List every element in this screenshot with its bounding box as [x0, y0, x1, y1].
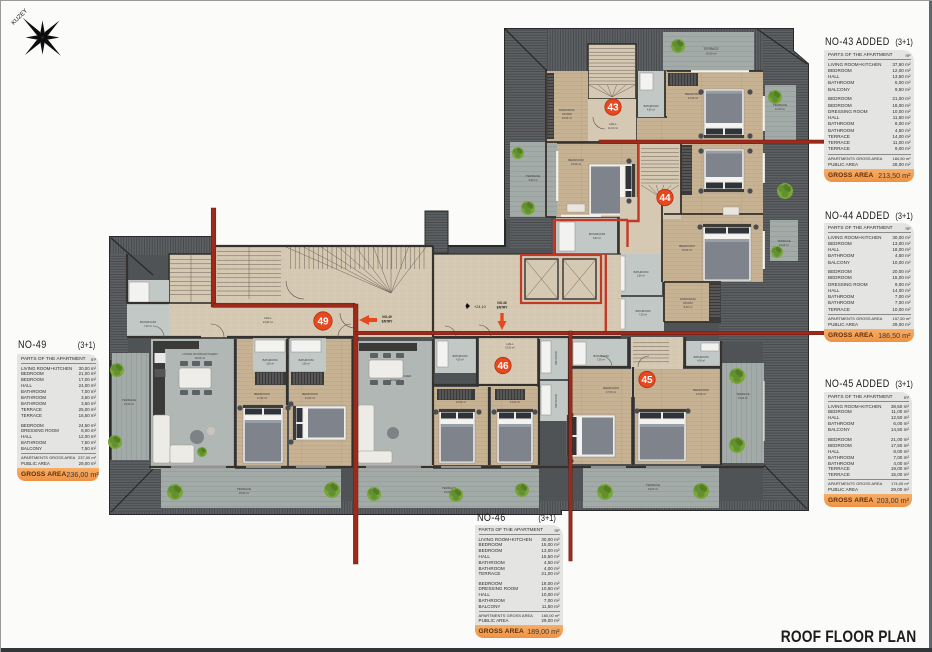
svg-text:17,50 m²: 17,50 m² [606, 390, 616, 394]
svg-text:13,00 m²: 13,00 m² [510, 400, 520, 404]
svg-text:11,00 m²: 11,00 m² [608, 126, 618, 130]
svg-text:BEDROOM: BEDROOM [693, 388, 709, 392]
svg-text:BEDROOM: BEDROOM [679, 244, 695, 248]
svg-text:BATHROOM: BATHROOM [263, 358, 278, 362]
svg-text:BATHROOM: BATHROOM [299, 358, 314, 362]
svg-text:15,00 m²: 15,00 m² [571, 162, 581, 166]
svg-text:21,00 m²: 21,00 m² [696, 392, 706, 396]
svg-text:7,00 m²: 7,00 m² [144, 325, 152, 328]
svg-text:3,50 m²: 3,50 m² [302, 363, 310, 366]
svg-text:49: 49 [317, 316, 329, 327]
svg-text:2,00 m²: 2,00 m² [637, 275, 645, 278]
svg-text:7,30 m²: 7,30 m² [639, 314, 647, 317]
svg-text:BATHROOM: BATHROOM [555, 394, 558, 408]
svg-text:15,50 m²: 15,50 m² [505, 347, 515, 350]
svg-text:3,50 m²: 3,50 m² [266, 363, 274, 366]
svg-text:LIVING ROOM+KITCHEN: LIVING ROOM+KITCHEN [183, 352, 218, 356]
svg-text:BEDROOM: BEDROOM [302, 392, 318, 396]
svg-text:4,00 m²: 4,00 m² [697, 360, 705, 363]
svg-text:BATHROOM: BATHROOM [636, 309, 651, 313]
svg-text:10,00 m²: 10,00 m² [779, 244, 789, 247]
svg-text:HALL: HALL [264, 316, 272, 320]
svg-text:45: 45 [641, 375, 653, 386]
svg-text:BATHROOM: BATHROOM [694, 355, 709, 359]
svg-text:NO-49: NO-49 [382, 315, 392, 319]
svg-text:15,00 m²: 15,00 m² [456, 400, 466, 404]
svg-text:7,00 m²: 7,00 m² [597, 359, 605, 362]
svg-text:21,00 m²: 21,00 m² [688, 96, 698, 100]
svg-text:21,00 m²: 21,00 m² [305, 396, 315, 400]
svg-text:10,00 m²: 10,00 m² [562, 116, 572, 120]
svg-text:44: 44 [659, 193, 671, 204]
svg-text:TERRACE: TERRACE [646, 483, 660, 487]
svg-text:TERRACE: TERRACE [122, 398, 136, 402]
svg-text:16,50 m²: 16,50 m² [124, 402, 134, 406]
svg-text:4,50 m²: 4,50 m² [456, 359, 464, 362]
svg-text:TERRACE: TERRACE [526, 174, 540, 178]
svg-text:15,00 m²: 15,00 m² [682, 248, 692, 252]
svg-text:TERRACE: TERRACE [237, 487, 251, 491]
svg-text:+24,10: +24,10 [474, 305, 486, 309]
svg-text:4,50 m²: 4,50 m² [647, 109, 655, 112]
svg-text:43: 43 [607, 102, 619, 113]
svg-text:BEDROOM: BEDROOM [568, 158, 584, 162]
svg-text:8,00 m²: 8,00 m² [593, 237, 601, 240]
svg-text:9,00 m²: 9,00 m² [529, 178, 538, 182]
svg-text:BEDROOM: BEDROOM [603, 386, 619, 390]
svg-text:BEDROOM: BEDROOM [254, 392, 270, 396]
svg-text:8,00 m²: 8,00 m² [684, 305, 693, 309]
svg-text:BATHROOM: BATHROOM [634, 270, 649, 274]
svg-text:11,00 m²: 11,00 m² [775, 107, 785, 111]
svg-text:HALL: HALL [507, 342, 514, 346]
svg-text:ROOM: ROOM [683, 301, 693, 305]
svg-text:BATHROOM: BATHROOM [644, 104, 659, 108]
svg-text:NO.46: NO.46 [497, 301, 506, 305]
svg-text:BATHROOM: BATHROOM [453, 354, 468, 358]
svg-text:TERRACE: TERRACE [777, 239, 790, 243]
svg-text:BATHROOM: BATHROOM [589, 232, 606, 236]
svg-text:46: 46 [497, 361, 509, 372]
svg-text:BATHROOM: BATHROOM [140, 320, 157, 324]
svg-text:30,00 m²: 30,00 m² [195, 356, 205, 360]
svg-text:17,00 m²: 17,00 m² [257, 396, 267, 400]
svg-text:BATHROOM: BATHROOM [555, 351, 558, 365]
svg-text:19,00 m²: 19,00 m² [648, 487, 658, 491]
svg-text:ENTRY: ENTRY [382, 320, 394, 324]
svg-text:24,90 m²: 24,90 m² [263, 320, 273, 324]
svg-text:TERRACE: TERRACE [703, 47, 718, 51]
svg-text:19,00 m²: 19,00 m² [705, 52, 716, 56]
svg-text:ROOM: ROOM [562, 112, 572, 116]
svg-text:15,00 m²: 15,00 m² [738, 397, 748, 400]
svg-text:25,00 m²: 25,00 m² [239, 491, 249, 495]
svg-text:HALL: HALL [609, 122, 617, 126]
svg-text:ENTRY: ENTRY [497, 306, 509, 310]
svg-text:TERRACE: TERRACE [736, 392, 749, 396]
